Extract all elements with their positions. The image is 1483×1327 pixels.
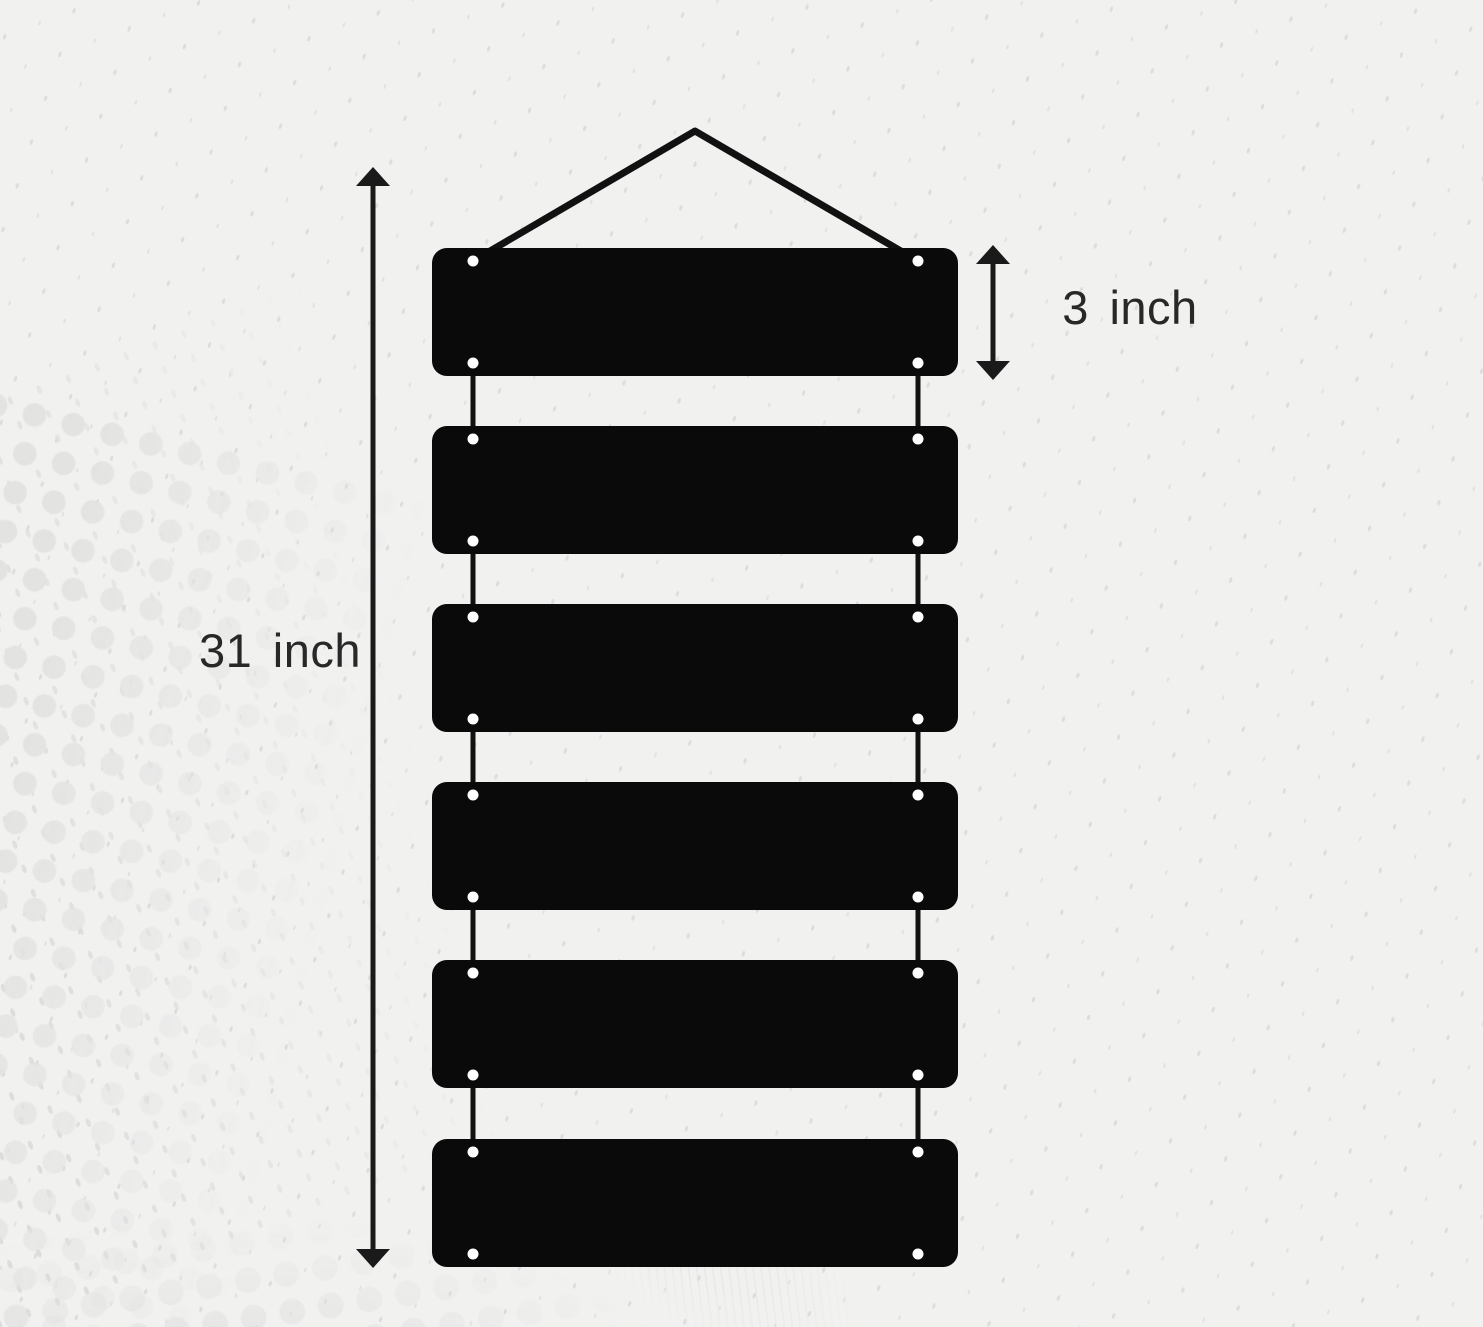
total-height-label: 31 inch	[160, 620, 400, 680]
total-height-arrow-icon	[356, 167, 390, 1268]
mounting-hole-dot-icon	[468, 968, 479, 979]
mounting-hole-dot-icon	[468, 256, 479, 267]
total-height-arrow-head-up	[356, 167, 390, 186]
mounting-hole-dot-icon	[913, 714, 924, 725]
mounting-hole-dot-icon	[468, 434, 479, 445]
mounting-hole-dot-icon	[913, 892, 924, 903]
plank-holes-group	[468, 256, 924, 1260]
mounting-hole-dot-icon	[468, 714, 479, 725]
mounting-hole-dot-icon	[468, 612, 479, 623]
mounting-hole-dot-icon	[468, 1070, 479, 1081]
mounting-hole-dot-icon	[913, 434, 924, 445]
mounting-hole-dot-icon	[913, 358, 924, 369]
mounting-hole-dot-icon	[468, 1147, 479, 1158]
mounting-hole-dot-icon	[913, 1249, 924, 1260]
mounting-hole-dot-icon	[913, 612, 924, 623]
plank-1	[432, 248, 958, 376]
plank-height-arrow-head-down	[976, 361, 1010, 380]
mounting-hole-dot-icon	[913, 968, 924, 979]
total-height-arrow-head-down	[356, 1249, 390, 1268]
plank-height-arrow-icon	[976, 245, 1010, 380]
mounting-hole-dot-icon	[913, 790, 924, 801]
mounting-hole-dot-icon	[468, 790, 479, 801]
hanging-string-icon	[473, 131, 918, 261]
plank-height-label: 3 inch	[1010, 277, 1250, 337]
plank-4	[432, 782, 958, 910]
plank-3	[432, 604, 958, 732]
mounting-hole-dot-icon	[468, 1249, 479, 1260]
mounting-hole-dot-icon	[913, 536, 924, 547]
plank-6	[432, 1139, 958, 1267]
plank-5	[432, 960, 958, 1088]
plank-height-arrow-head-up	[976, 245, 1010, 264]
mounting-hole-dot-icon	[468, 536, 479, 547]
mounting-hole-dot-icon	[913, 1070, 924, 1081]
product-dimension-image: 31 inch 3 inch	[0, 0, 1483, 1327]
mounting-hole-dot-icon	[913, 256, 924, 267]
mounting-hole-dot-icon	[913, 1147, 924, 1158]
mounting-hole-dot-icon	[468, 358, 479, 369]
mounting-hole-dot-icon	[468, 892, 479, 903]
planks-group	[432, 248, 958, 1267]
plank-2	[432, 426, 958, 554]
